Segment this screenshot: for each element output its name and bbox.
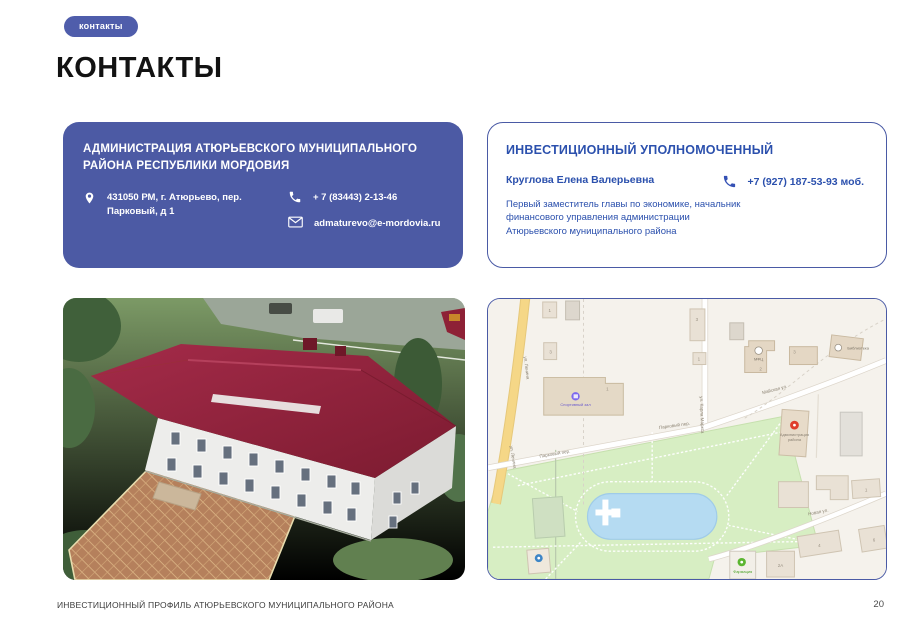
- map-poi-library: Библиотека: [835, 344, 870, 351]
- map-illustration: 1 3 3 1 1 2 3 1 4 6 2А Спортивный зал МФ…: [488, 299, 886, 579]
- slide-contacts: контакты КОНТАКТЫ АДМИНИСТРАЦИЯ АТЮРЬЕВС…: [0, 0, 900, 623]
- mobile-phone-row: +7 (927) 187-53-93 моб.: [722, 174, 864, 189]
- map-poi-shop: [535, 554, 543, 562]
- representative-position: Первый заместитель главы по экономике, н…: [506, 198, 751, 238]
- envelope-icon: [288, 216, 303, 228]
- phone-icon: [288, 190, 302, 204]
- svg-text:Фармация: Фармация: [733, 569, 752, 574]
- page-number: 20: [873, 599, 884, 610]
- phone-icon: [722, 174, 737, 189]
- mobile-phone-text: +7 (927) 187-53-93 моб.: [747, 176, 864, 188]
- phone-email-column: + 7 (83443) 2-13-46 admaturevo@e-mordovi…: [288, 191, 440, 231]
- administration-building-photo: [63, 298, 465, 580]
- investment-representative-card: ИНВЕСТИЦИОННЫЙ УПОЛНОМОЧЕННЫЙ Круглова Е…: [487, 122, 887, 268]
- investment-card-title: ИНВЕСТИЦИОННЫЙ УПОЛНОМОЧЕННЫЙ: [506, 143, 868, 157]
- svg-text:2А: 2А: [778, 563, 783, 568]
- address-row: 431050 РМ, г. Атюрьево, пер. Парковый, д…: [83, 191, 288, 231]
- section-badge: контакты: [64, 16, 138, 37]
- phone-row: + 7 (83443) 2-13-46: [288, 191, 440, 205]
- representative-name: Круглова Елена Валерьевна: [506, 174, 654, 186]
- administration-card: АДМИНИСТРАЦИЯ АТЮРЬЕВСКОГО МУНИЦИПАЛЬНОГ…: [63, 122, 463, 268]
- email-row: admaturevo@e-mordovia.ru: [288, 217, 440, 231]
- email-text: admaturevo@e-mordovia.ru: [314, 217, 440, 231]
- svg-text:Спортивный зал: Спортивный зал: [560, 402, 591, 407]
- administration-card-title: АДМИНИСТРАЦИЯ АТЮРЬЕВСКОГО МУНИЦИПАЛЬНОГ…: [83, 141, 443, 174]
- representative-row: Круглова Елена Валерьевна +7 (927) 187-5…: [506, 174, 868, 189]
- building-photo-illustration: [63, 298, 465, 580]
- phone-text: + 7 (83443) 2-13-46: [313, 191, 397, 205]
- footer-title: ИНВЕСТИЦИОННЫЙ ПРОФИЛЬ АТЮРЬЕВСКОГО МУНИ…: [57, 600, 394, 610]
- administration-contacts: 431050 РМ, г. Атюрьево, пер. Парковый, д…: [83, 191, 443, 231]
- page-title: КОНТАКТЫ: [56, 52, 223, 85]
- location-pin-icon: [83, 190, 96, 206]
- svg-text:Библиотека: Библиотека: [847, 346, 869, 351]
- svg-text:района: района: [788, 437, 802, 442]
- location-map: 1 3 3 1 1 2 3 1 4 6 2А Спортивный зал МФ…: [487, 298, 887, 580]
- address-text: 431050 РМ, г. Атюрьево, пер. Парковый, д…: [107, 191, 267, 219]
- svg-text:МФЦ: МФЦ: [754, 357, 763, 362]
